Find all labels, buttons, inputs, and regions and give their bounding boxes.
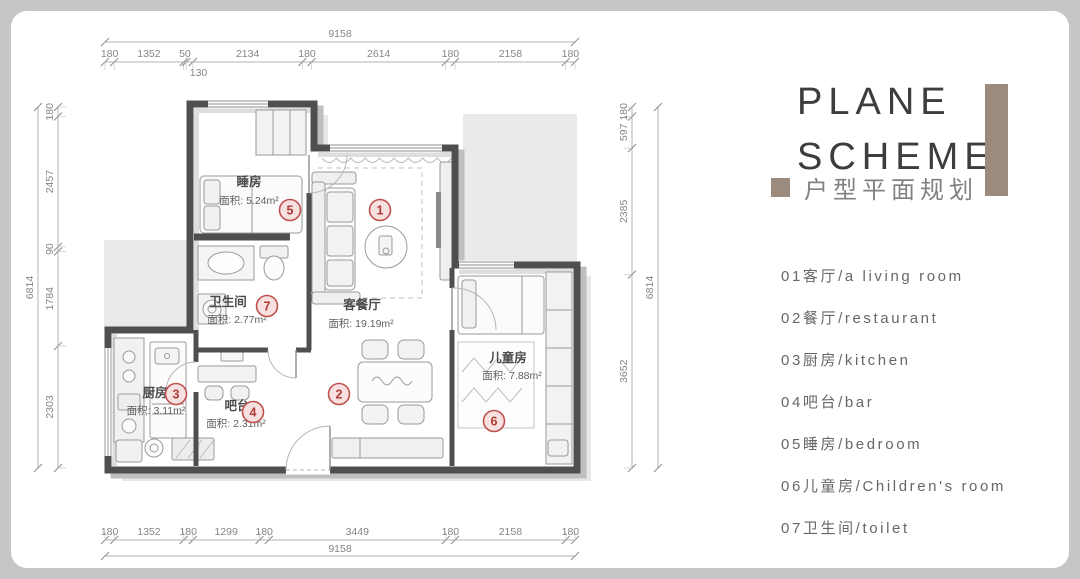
svg-text:3: 3	[173, 388, 180, 402]
svg-text:1299: 1299	[215, 526, 239, 538]
svg-text:9158: 9158	[328, 28, 352, 40]
svg-text:180: 180	[101, 48, 119, 60]
svg-text:面积: 2.77m²: 面积: 2.77m²	[207, 314, 267, 326]
svg-text:180: 180	[442, 48, 460, 60]
accent-bar	[985, 84, 1008, 196]
svg-text:180: 180	[179, 526, 197, 538]
legend-item: 07卫生间/toilet	[781, 517, 1006, 538]
svg-text:180: 180	[101, 526, 119, 538]
legend-item: 03厨房/kitchen	[781, 349, 1006, 370]
legend-item: 05睡房/bedroom	[781, 433, 1006, 454]
panel-subtitle: 户型平面规划	[804, 170, 978, 205]
svg-text:50: 50	[179, 48, 191, 60]
subtitle-row: 户型平面规划	[771, 174, 978, 200]
svg-text:2158: 2158	[499, 526, 523, 538]
svg-text:1352: 1352	[137, 48, 161, 60]
svg-text:3652: 3652	[618, 359, 630, 383]
svg-text:睡房: 睡房	[236, 174, 261, 189]
legend-item: 02餐厅/restaurant	[781, 307, 1006, 328]
svg-text:180: 180	[442, 526, 460, 538]
legend-item: 04吧台/bar	[781, 391, 1006, 412]
svg-text:2457: 2457	[44, 170, 56, 194]
svg-text:1: 1	[377, 204, 384, 218]
svg-text:2134: 2134	[236, 48, 260, 60]
svg-text:6814: 6814	[24, 276, 36, 300]
room-legend: 01客厅/a living room02餐厅/restaurant03厨房/ki…	[781, 265, 1006, 538]
svg-text:面积: 5.24m²: 面积: 5.24m²	[219, 195, 279, 207]
svg-text:1352: 1352	[137, 526, 161, 538]
svg-text:1784: 1784	[44, 287, 56, 311]
svg-text:180: 180	[298, 48, 316, 60]
svg-text:6: 6	[491, 415, 498, 429]
svg-text:180: 180	[562, 48, 580, 60]
svg-text:7: 7	[264, 300, 271, 314]
svg-text:4: 4	[250, 406, 257, 420]
svg-text:3449: 3449	[346, 526, 370, 538]
svg-text:2385: 2385	[618, 200, 630, 224]
svg-text:2303: 2303	[44, 395, 56, 419]
svg-text:卫生间: 卫生间	[209, 294, 247, 309]
svg-text:厨房: 厨房	[142, 385, 167, 400]
svg-text:180: 180	[255, 526, 273, 538]
svg-text:面积: 19.19m²: 面积: 19.19m²	[328, 318, 394, 330]
svg-text:面积: 3.11m²: 面积: 3.11m²	[127, 405, 186, 417]
legend-item: 01客厅/a living room	[781, 265, 1006, 286]
svg-text:180: 180	[618, 103, 630, 121]
svg-text:130: 130	[190, 67, 208, 79]
svg-text:9158: 9158	[328, 543, 352, 555]
svg-text:2614: 2614	[367, 48, 391, 60]
svg-text:6814: 6814	[644, 276, 656, 300]
svg-text:2158: 2158	[499, 48, 523, 60]
svg-text:180: 180	[44, 103, 56, 121]
svg-text:2: 2	[336, 388, 343, 402]
card: 9158180135250130213418026141802158180180…	[11, 11, 1069, 568]
svg-text:儿童房: 儿童房	[488, 350, 527, 365]
svg-text:90: 90	[44, 243, 56, 255]
accent-square	[771, 178, 790, 197]
svg-text:面积: 7.88m²: 面积: 7.88m²	[482, 370, 542, 382]
svg-text:597: 597	[618, 123, 630, 141]
svg-text:180: 180	[562, 526, 580, 538]
panel-title: PLANE SCHEME	[797, 75, 996, 185]
title-line-1: PLANE	[797, 75, 996, 130]
svg-text:客餐厅: 客餐厅	[342, 297, 381, 312]
svg-text:5: 5	[287, 204, 294, 218]
legend-item: 06儿童房/Children's room	[781, 475, 1006, 496]
